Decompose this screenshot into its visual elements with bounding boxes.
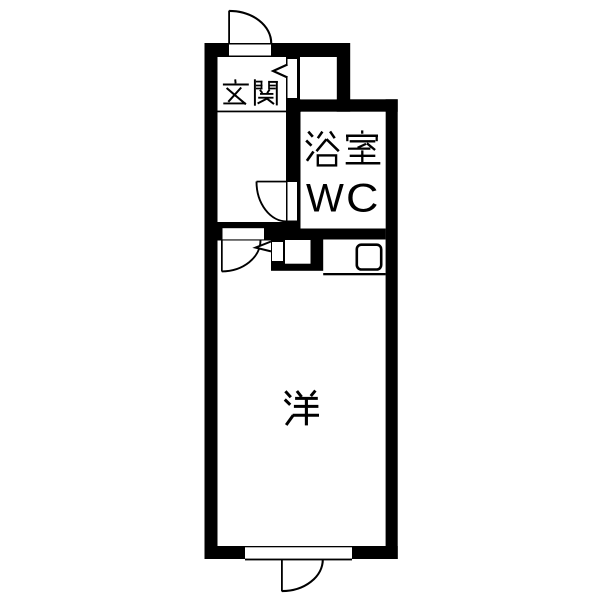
svg-text:C: C — [346, 176, 378, 220]
svg-text:W: W — [306, 177, 344, 221]
